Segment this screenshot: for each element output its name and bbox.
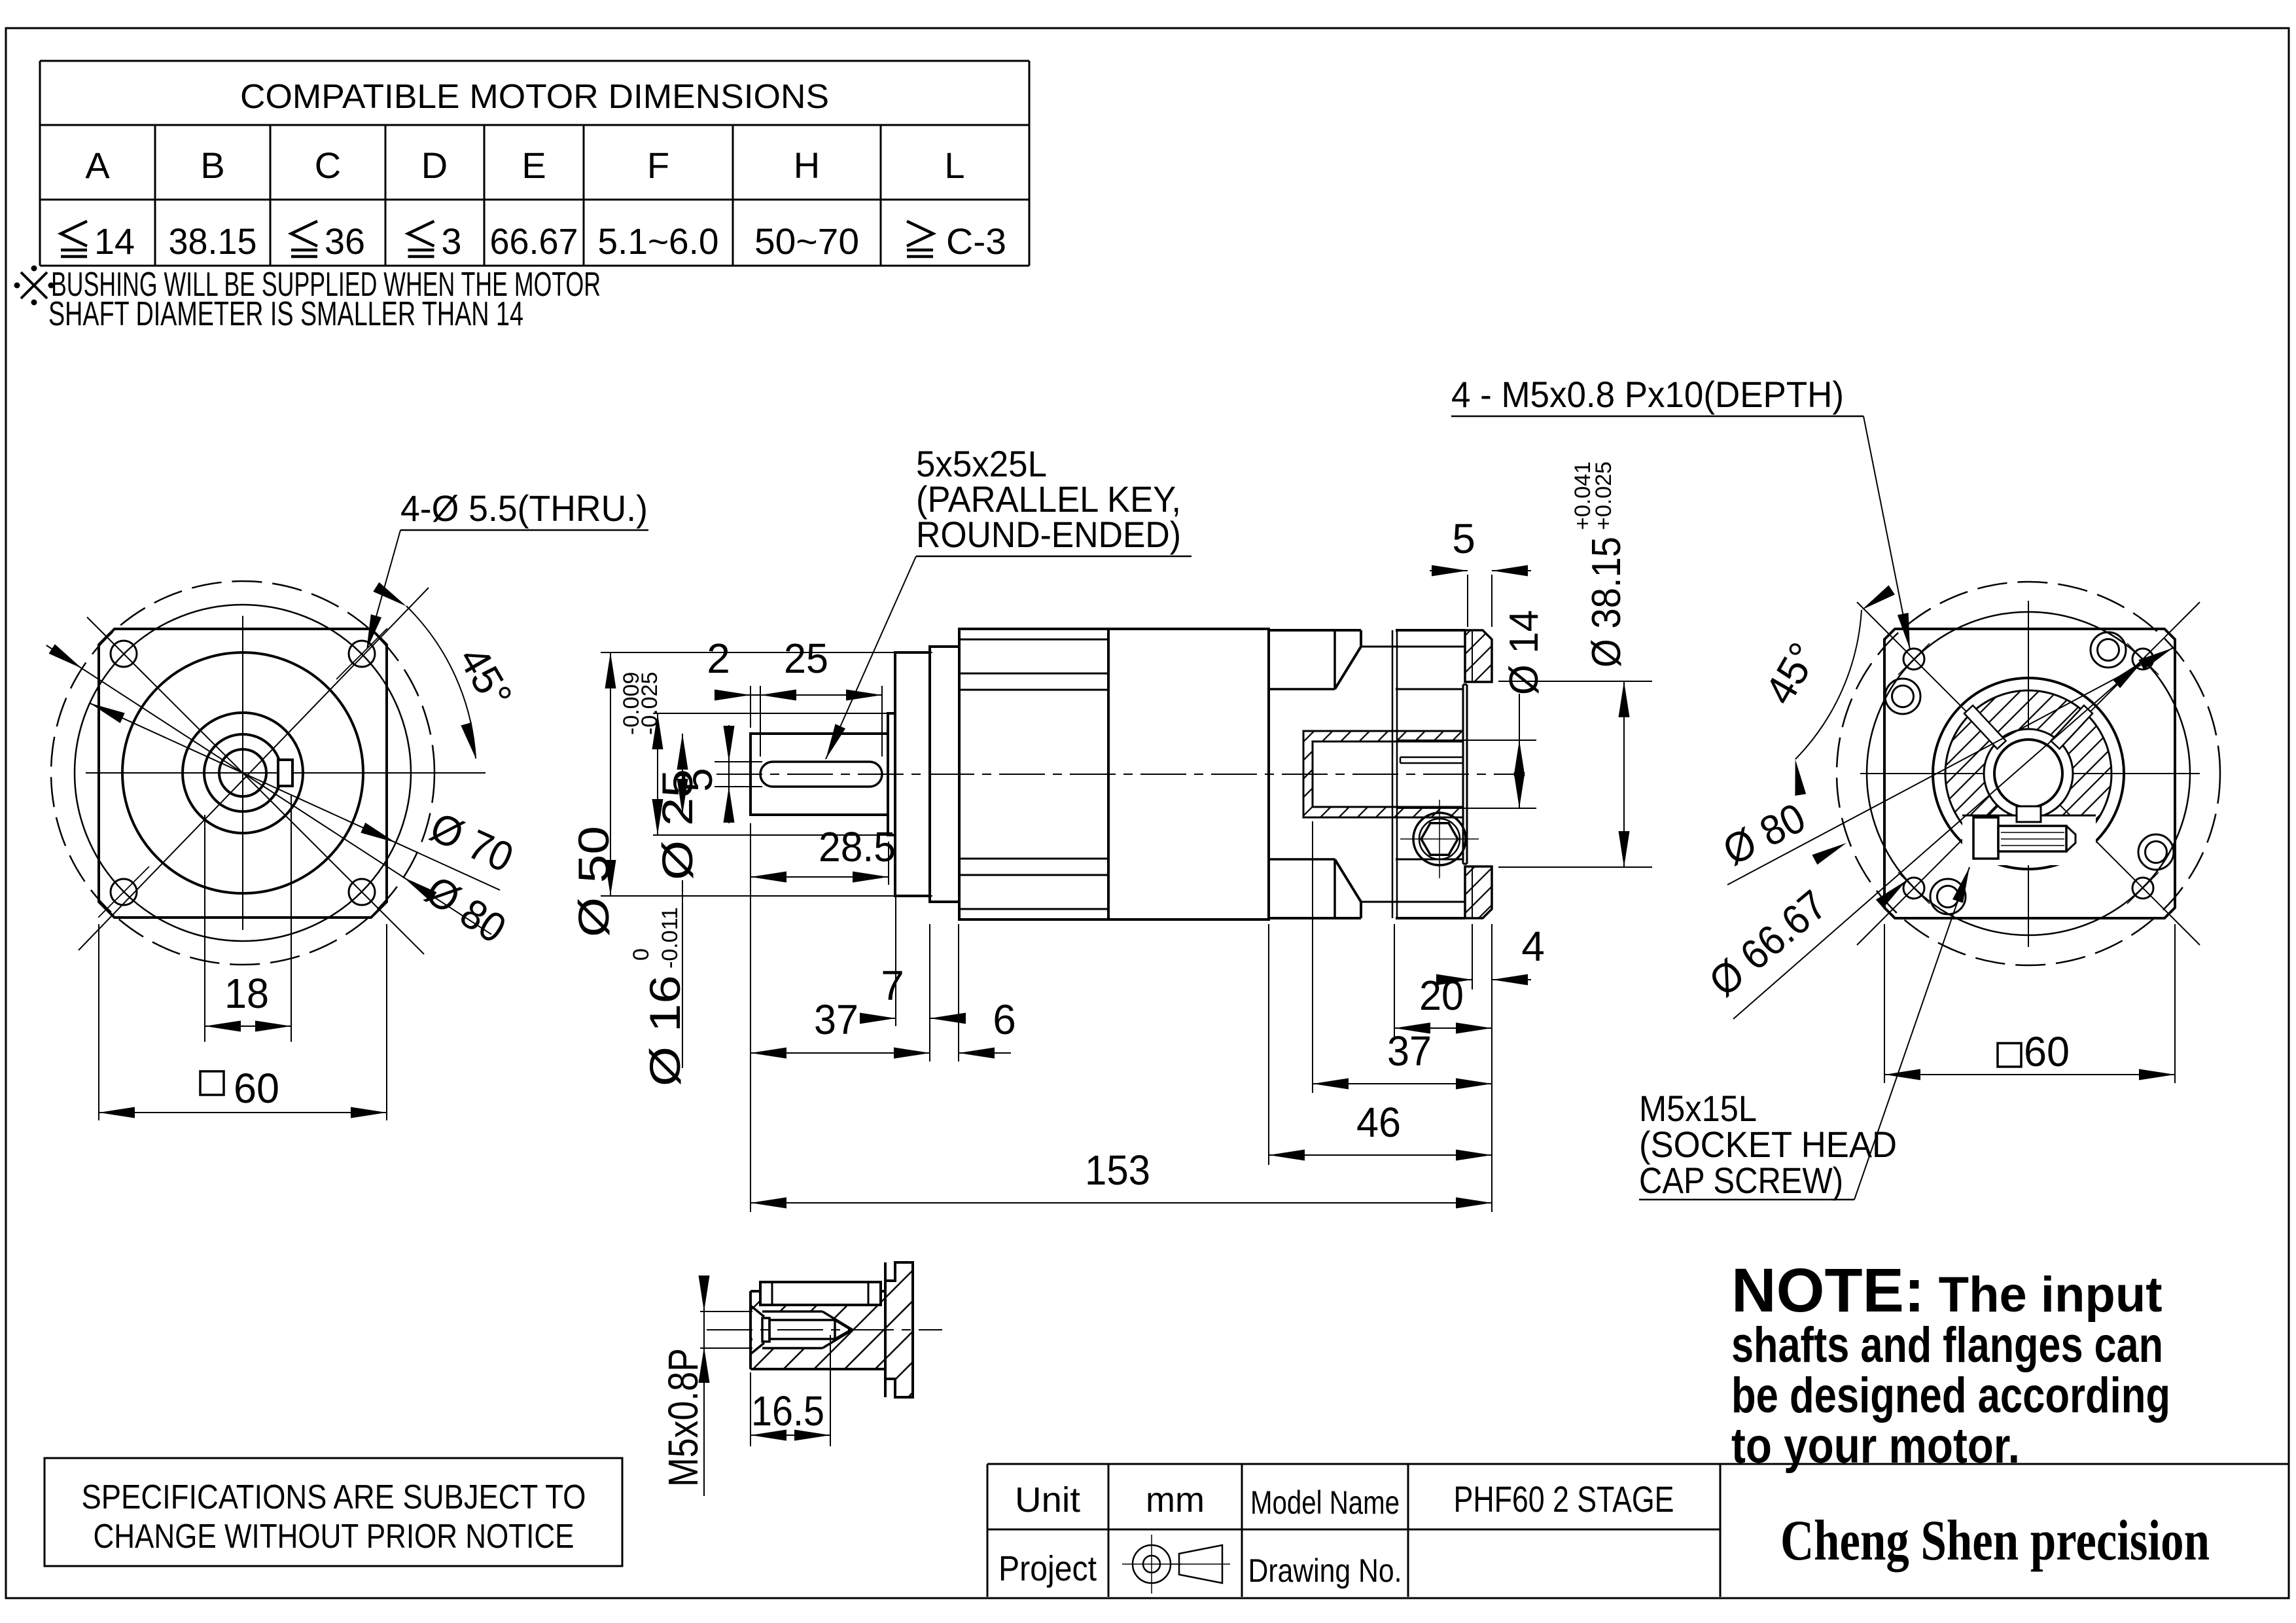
svg-text:SHAFT DIAMETER IS SMALLER THAN: SHAFT DIAMETER IS SMALLER THAN 14 xyxy=(48,295,523,333)
svg-text:C-3: C-3 xyxy=(946,221,1006,262)
svg-text:Model Name: Model Name xyxy=(1250,1484,1400,1521)
svg-text:CHANGE WITHOUT PRIOR NOTICE: CHANGE WITHOUT PRIOR NOTICE xyxy=(94,1518,574,1556)
svg-text:25: 25 xyxy=(784,635,828,682)
svg-text:7: 7 xyxy=(881,962,904,1009)
svg-text:D: D xyxy=(421,145,448,186)
svg-text:38.15: 38.15 xyxy=(169,221,257,262)
svg-text:Ø 50: Ø 50 xyxy=(569,826,618,937)
svg-text:16.5: 16.5 xyxy=(751,1387,824,1435)
svg-text:shafts and flanges can: shafts and flanges can xyxy=(1731,1317,2163,1373)
svg-text:A: A xyxy=(85,145,110,186)
svg-text:F: F xyxy=(647,145,669,186)
svg-text:153: 153 xyxy=(1085,1147,1150,1194)
svg-text:3: 3 xyxy=(442,221,462,262)
svg-text:0: 0 xyxy=(629,948,654,961)
svg-text:CAP SCREW): CAP SCREW) xyxy=(1639,1160,1843,1201)
svg-text:4 - M5x0.8 Px10(DEPTH): 4 - M5x0.8 Px10(DEPTH) xyxy=(1451,374,1844,415)
svg-text:Ø 38.15: Ø 38.15 xyxy=(1584,537,1629,668)
svg-text:50~70: 50~70 xyxy=(754,221,859,262)
svg-text:28.5: 28.5 xyxy=(819,823,896,870)
svg-text:Unit: Unit xyxy=(1015,1480,1080,1520)
svg-text:Cheng Shen precision: Cheng Shen precision xyxy=(1780,1509,2210,1573)
svg-text:60: 60 xyxy=(2024,1028,2070,1075)
svg-text:E: E xyxy=(521,145,546,186)
svg-text:Ø 16: Ø 16 xyxy=(641,975,689,1086)
svg-text:+0.025: +0.025 xyxy=(1591,461,1616,530)
svg-text:4: 4 xyxy=(1521,923,1545,970)
svg-text:46: 46 xyxy=(1356,1099,1401,1146)
svg-text:37: 37 xyxy=(814,996,858,1043)
svg-text:2: 2 xyxy=(707,635,730,682)
svg-text:60: 60 xyxy=(234,1065,279,1112)
svg-text:M5x15L: M5x15L xyxy=(1639,1088,1757,1129)
svg-text:37: 37 xyxy=(1387,1027,1432,1075)
svg-text:H: H xyxy=(794,145,820,186)
svg-text:be designed according: be designed according xyxy=(1731,1368,2170,1423)
svg-text:to your motor.: to your motor. xyxy=(1731,1418,2020,1474)
svg-text:(SOCKET HEAD: (SOCKET HEAD xyxy=(1639,1124,1897,1165)
svg-text:18: 18 xyxy=(224,970,269,1017)
svg-text:Drawing No.: Drawing No. xyxy=(1248,1552,1402,1589)
svg-text:L: L xyxy=(944,145,964,186)
svg-text:SPECIFICATIONS ARE SUBJECT TO: SPECIFICATIONS ARE SUBJECT TO xyxy=(82,1478,586,1516)
svg-text:4-Ø 5.5(THRU.): 4-Ø 5.5(THRU.) xyxy=(400,488,648,529)
svg-text:6: 6 xyxy=(993,996,1016,1043)
svg-text:5: 5 xyxy=(1452,515,1475,562)
svg-text:mm: mm xyxy=(1146,1480,1205,1520)
svg-text:66.67: 66.67 xyxy=(490,221,578,262)
svg-text:Ø 14: Ø 14 xyxy=(1502,610,1547,695)
svg-text:M5x0.8P: M5x0.8P xyxy=(660,1348,707,1487)
svg-text:14: 14 xyxy=(94,221,135,262)
svg-text:B: B xyxy=(200,145,224,186)
svg-text:C: C xyxy=(315,145,341,186)
svg-text:-0.011: -0.011 xyxy=(658,907,682,969)
svg-text:5.1~6.0: 5.1~6.0 xyxy=(598,221,719,262)
svg-text:ROUND-ENDED): ROUND-ENDED) xyxy=(916,514,1181,555)
svg-text:PHF60 2 STAGE: PHF60 2 STAGE xyxy=(1454,1478,1674,1520)
svg-text:Project: Project xyxy=(998,1549,1097,1588)
svg-text:36: 36 xyxy=(325,221,365,262)
svg-text:COMPATIBLE MOTOR DIMENSIONS: COMPATIBLE MOTOR DIMENSIONS xyxy=(240,78,829,116)
